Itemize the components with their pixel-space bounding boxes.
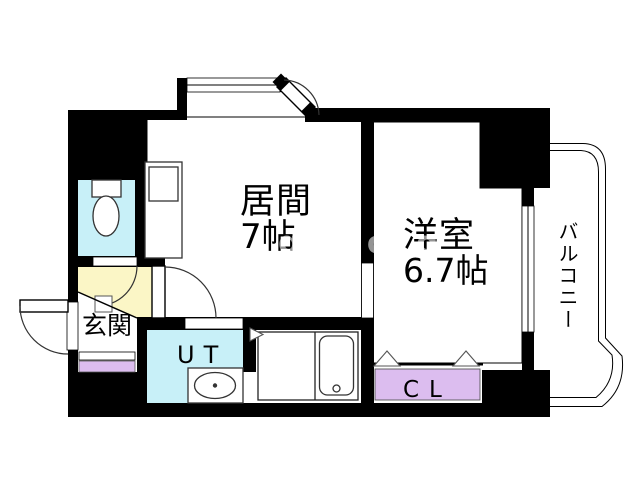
balcony-label: バルコニー xyxy=(556,221,577,331)
wall-entrance-east xyxy=(137,318,147,403)
entrance-door-swing-arc xyxy=(20,306,68,354)
toilet-bowl-icon xyxy=(93,196,119,236)
entrance-label: 玄関 xyxy=(82,313,132,339)
western-door-opening xyxy=(362,263,374,318)
wall-top-right xyxy=(305,108,483,122)
kitchen-sink-icon xyxy=(149,167,178,201)
living-door-leaf xyxy=(152,266,165,318)
washbasin-faucet-icon xyxy=(213,383,217,387)
wall-east-stub-upper xyxy=(522,188,534,206)
shoe-cabinet-top xyxy=(79,352,135,360)
bathtub-drain-icon xyxy=(333,385,340,392)
wall-bottom xyxy=(137,403,550,417)
living-door-swing-arc xyxy=(165,267,216,318)
utility-door-opening xyxy=(185,318,243,329)
toilet-door-opening xyxy=(93,257,137,266)
floor-plan: 居間 7帖 洋室 6.7帖 玄関 UT CL バルコニー gjog xyxy=(0,0,640,480)
wall-west-upper xyxy=(68,110,78,302)
wall-ne-block xyxy=(480,108,550,188)
shoe-cabinet-icon xyxy=(79,361,135,372)
closet-door-marker-right-icon xyxy=(453,351,479,366)
closet-door-marker-left-icon xyxy=(374,351,400,366)
wall-top-left-v xyxy=(177,78,187,120)
utility-label: UT xyxy=(177,343,227,368)
wall-top-left-h xyxy=(68,110,187,120)
living-room-label: 居間 xyxy=(240,184,312,221)
wall-sw-block xyxy=(68,372,147,417)
wall-east-stub-lower xyxy=(522,332,534,372)
closet-label: CL xyxy=(403,378,452,402)
entrance-door-leaf xyxy=(20,300,68,312)
toilet-tank-icon xyxy=(92,180,121,197)
watermark-text: gjog xyxy=(278,227,466,260)
